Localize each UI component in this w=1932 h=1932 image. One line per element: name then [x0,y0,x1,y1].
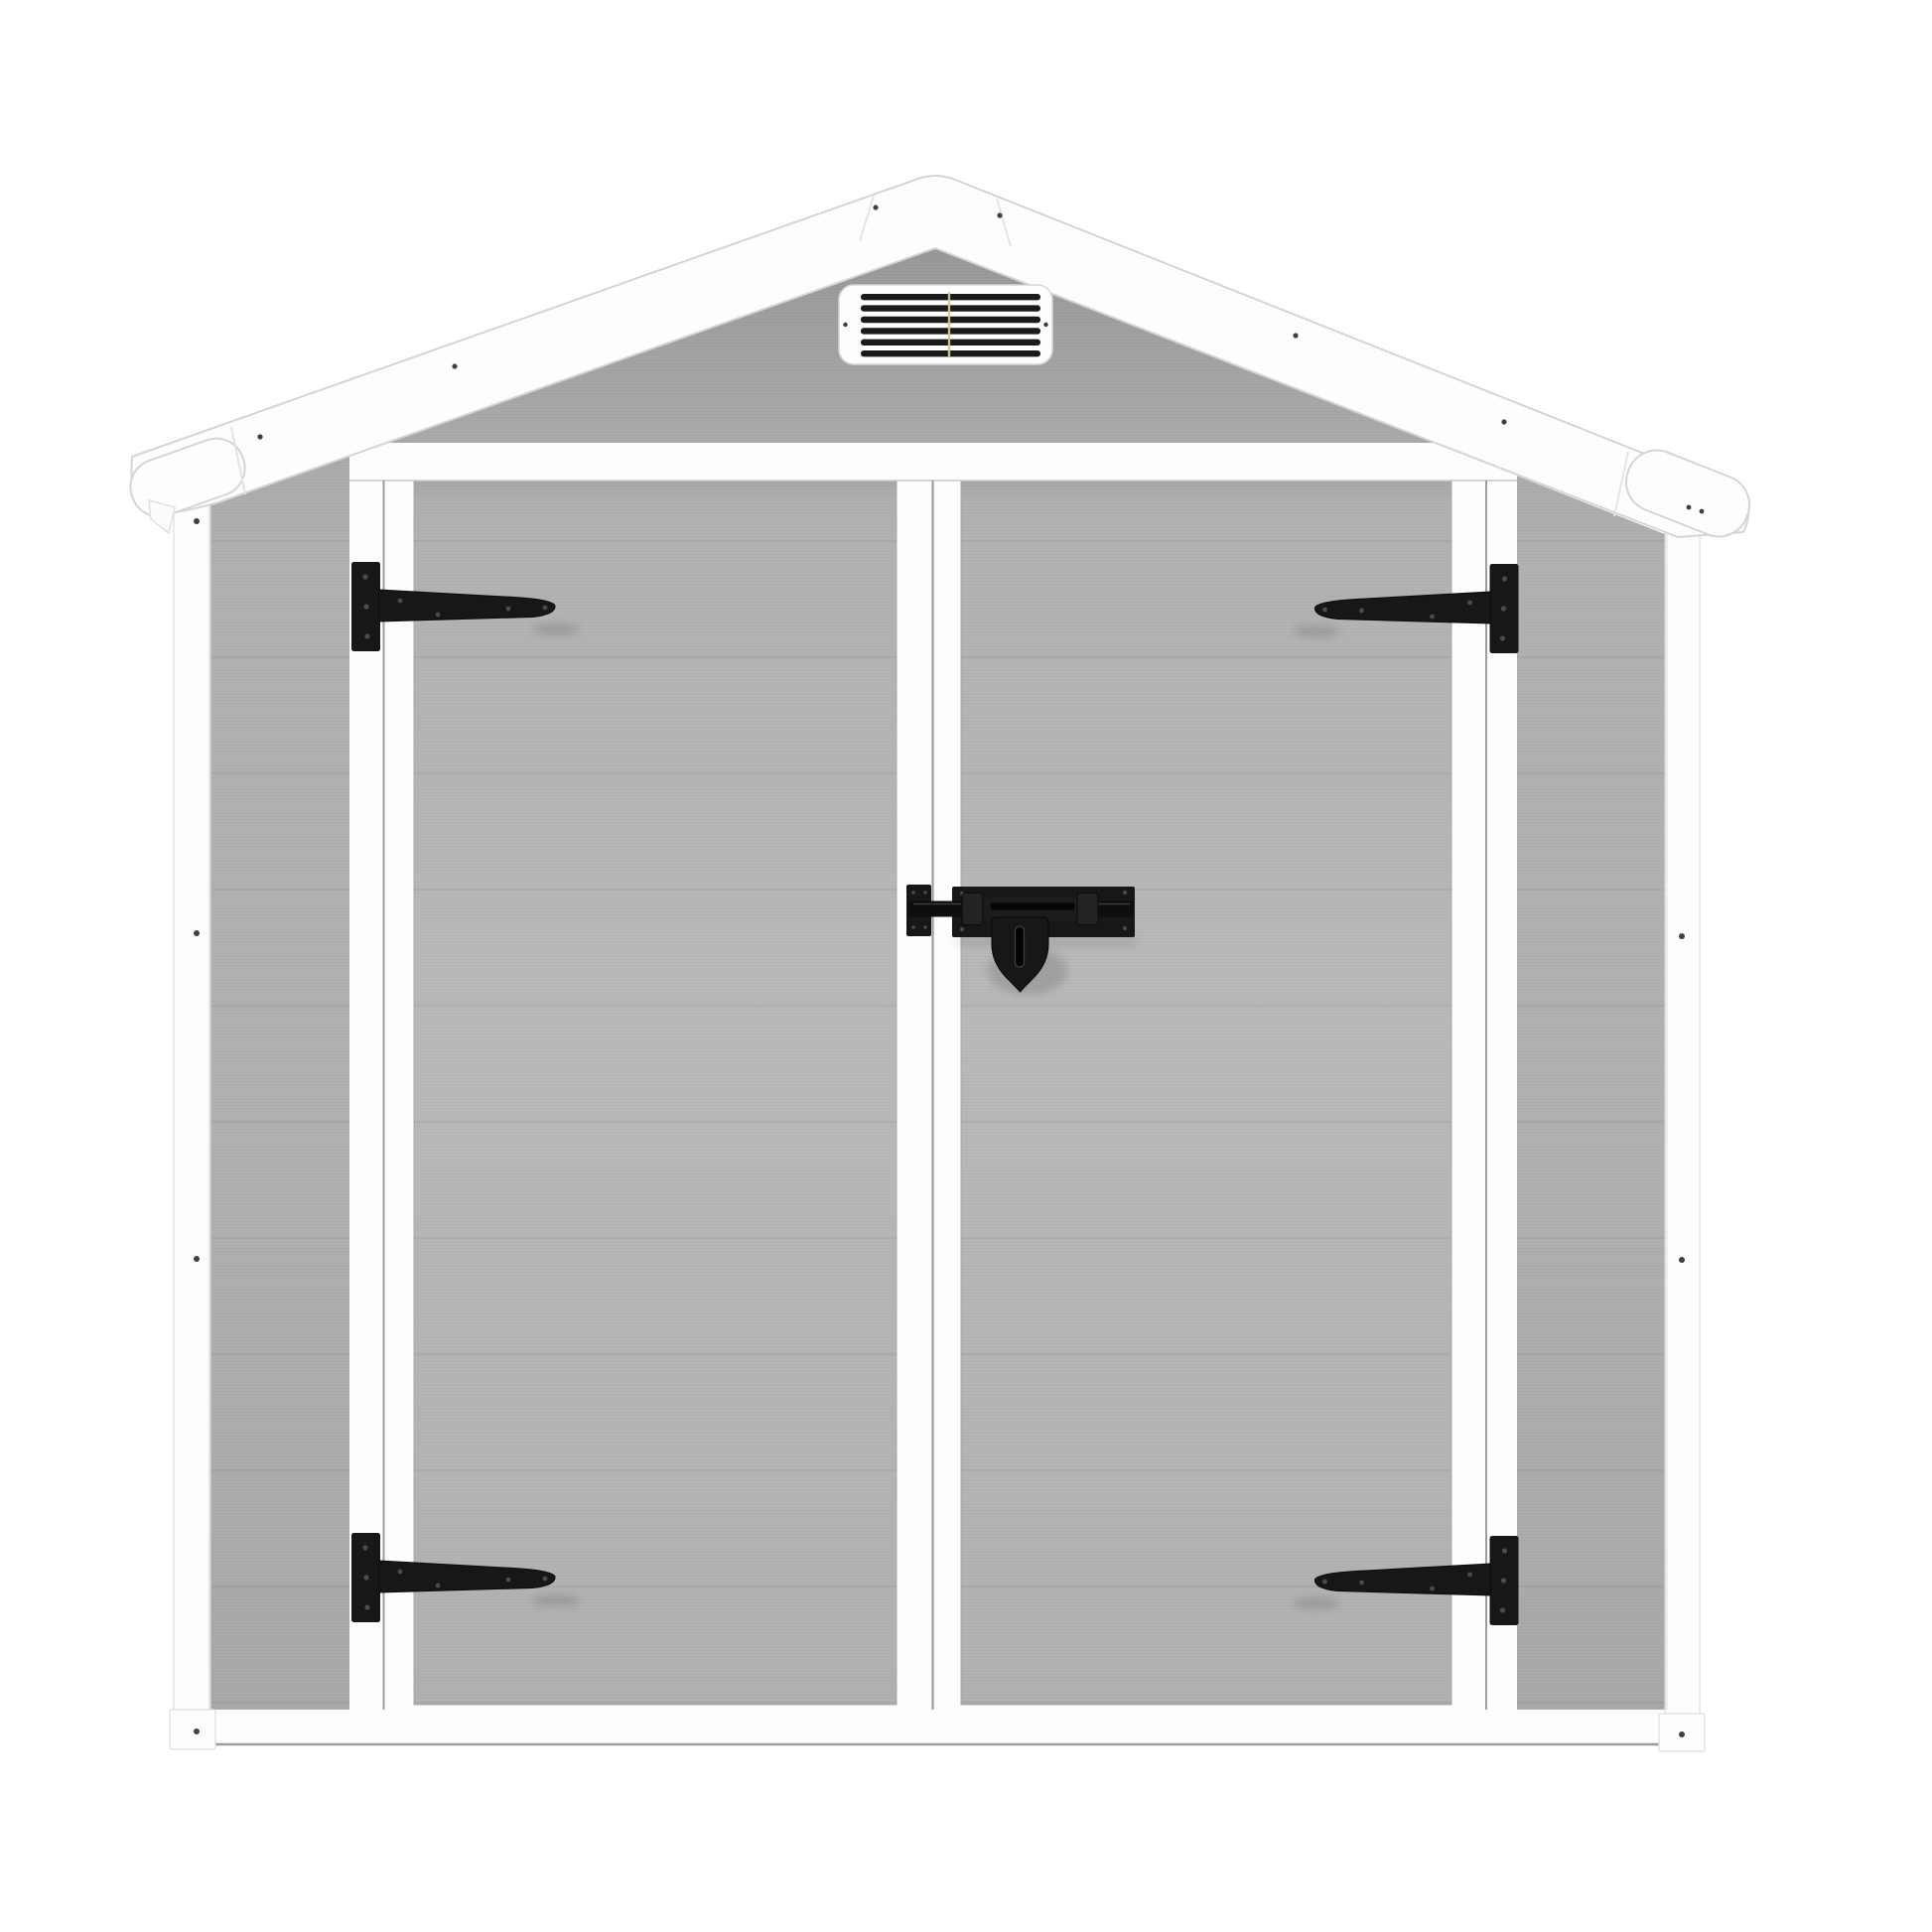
hinge-shadow [532,623,580,635]
right-post-inner-shade [1665,534,1668,1710]
screw-icon [194,1728,200,1734]
vent-pull-cord [948,292,950,356]
left-post-inner-shade [208,502,211,1710]
screw-icon [873,205,878,209]
right-wall-seams [1517,526,1665,1710]
vent-slat [861,328,1040,334]
screw-icon [923,891,927,895]
latch-bolt-guide-left [962,894,983,925]
screw-icon [194,518,200,524]
screw-icon [257,434,262,439]
vent-slat [861,305,1040,311]
screw-icon [1687,505,1692,510]
right-corner-post [1665,496,1700,1744]
screw-icon [1293,333,1298,338]
screw-icon [911,891,915,895]
vent-slat [861,294,1040,300]
screw-icon [194,1256,200,1262]
latch-pull-slot [1016,926,1025,967]
left-wall-seams [210,526,349,1710]
left-door-seams [414,526,897,1705]
shed-illustration [0,0,1932,1932]
shed-product-image [0,0,1932,1932]
screw-icon [1123,891,1127,895]
door-assembly [349,443,1517,1744]
latch-bolt-guide-right [1077,894,1098,925]
screw-icon [1700,509,1705,514]
screw-icon [1679,933,1685,939]
screw-icon [194,930,200,936]
screw-icon [1679,1257,1685,1263]
base-rail [210,1710,1665,1744]
screw-icon [1501,419,1506,424]
right-door-seams [961,526,1451,1705]
vent-slat [861,350,1040,356]
vent-slat [861,340,1040,345]
screw-icon [843,323,847,327]
screw-icon [997,212,1002,217]
latch-bolt-groove [991,903,1074,910]
screw-icon [1123,926,1127,930]
screw-icon [1679,1731,1685,1737]
screw-icon [960,927,964,931]
gable-vent [839,285,1052,364]
base [177,1710,1702,1744]
hinge-shadow [1293,625,1340,637]
screw-icon [1043,323,1047,327]
left-corner-foot [170,1710,215,1749]
hinge-shadow [532,1594,580,1606]
screw-icon [911,925,915,929]
screw-icon [923,925,927,929]
screw-icon [452,363,457,368]
vent-slat [861,317,1040,323]
left-corner-post [174,465,210,1747]
hinge-shadow [1293,1597,1340,1609]
